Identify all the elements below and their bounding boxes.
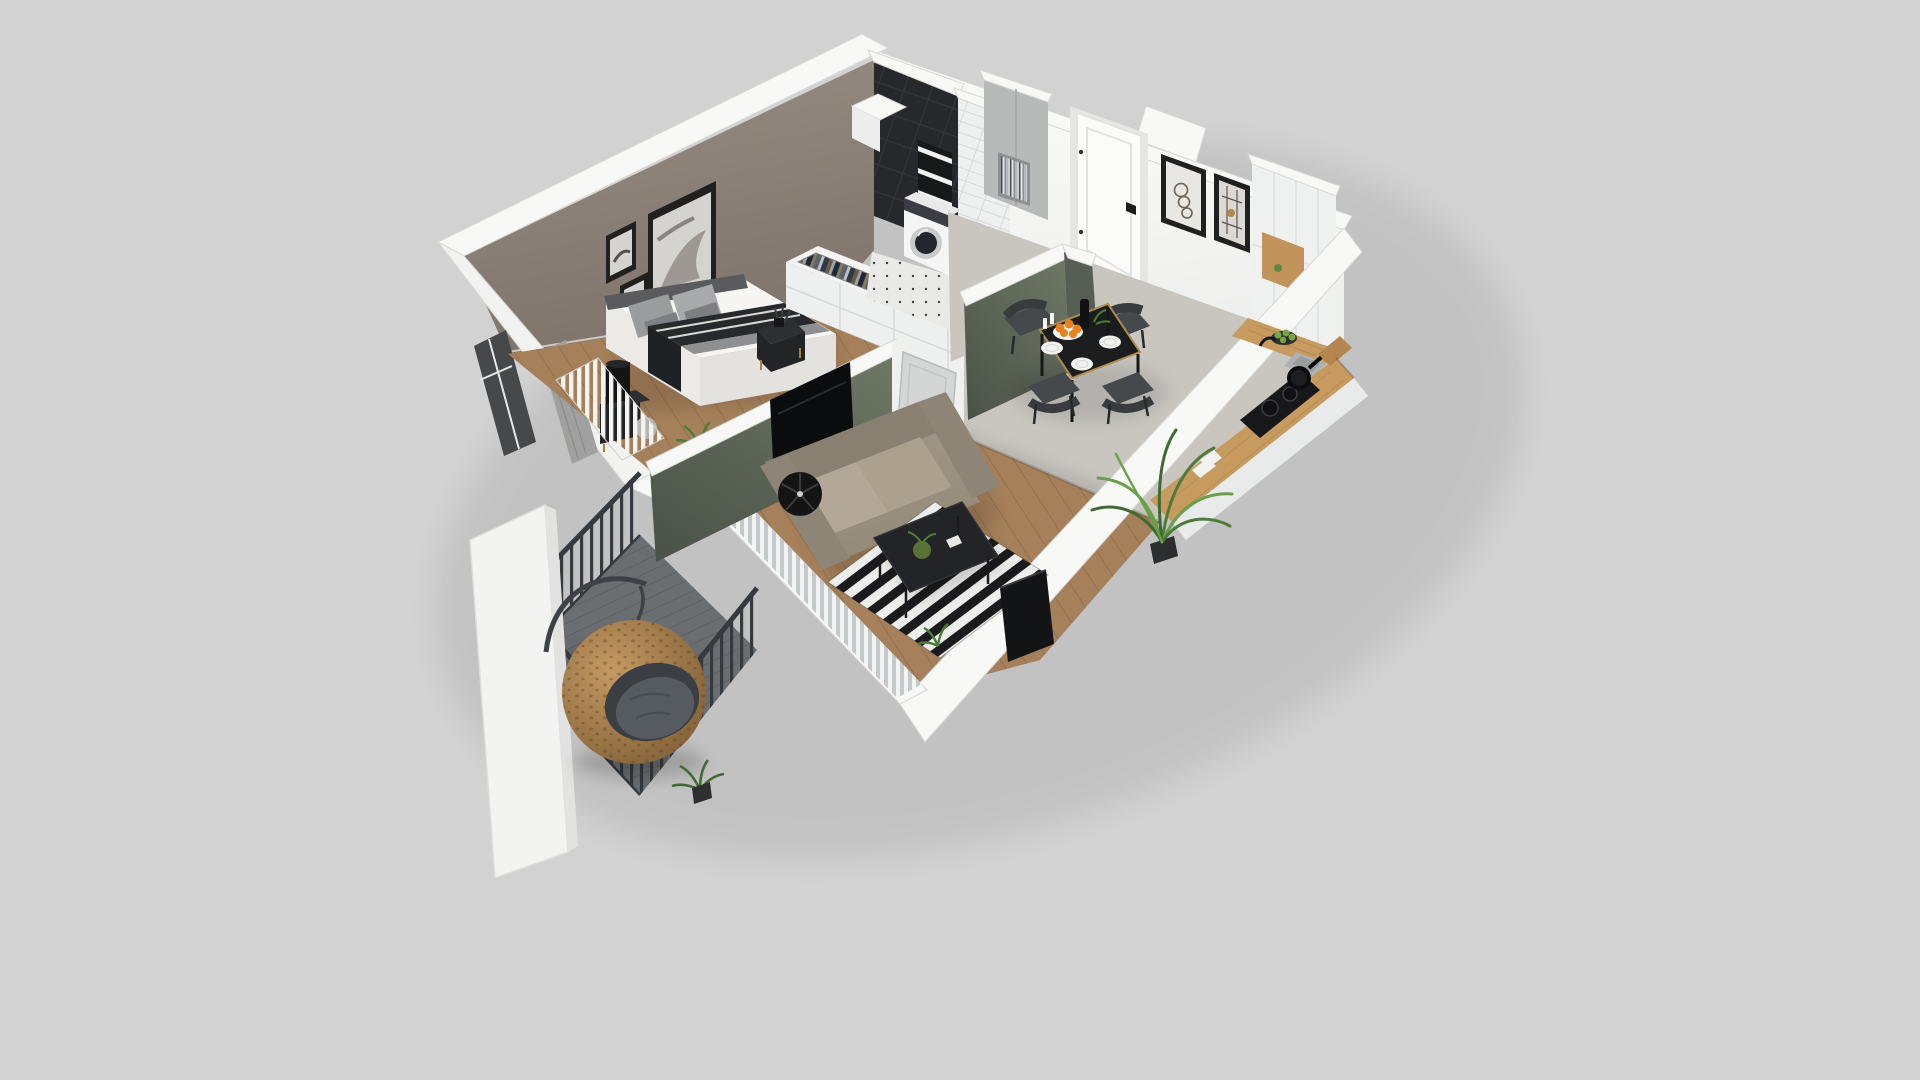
plate xyxy=(1041,342,1063,355)
framed-art-geometric xyxy=(1214,173,1250,253)
bottle xyxy=(1080,299,1089,329)
plate xyxy=(1099,336,1121,349)
door-hinge-icon xyxy=(1079,230,1083,234)
floorplan-stage: 3D isometric cutaway render of a studio … xyxy=(0,0,1920,1080)
floorplan-render xyxy=(0,0,1920,1080)
burner-icon xyxy=(1262,400,1278,416)
vase-black xyxy=(774,318,784,327)
floor-lamp xyxy=(778,472,822,516)
pepper-shaker xyxy=(1050,313,1054,324)
plate xyxy=(1071,358,1093,371)
niche-plant-icon xyxy=(1274,264,1282,272)
salt-shaker xyxy=(1043,318,1047,329)
door-hinge-icon xyxy=(1079,150,1083,154)
